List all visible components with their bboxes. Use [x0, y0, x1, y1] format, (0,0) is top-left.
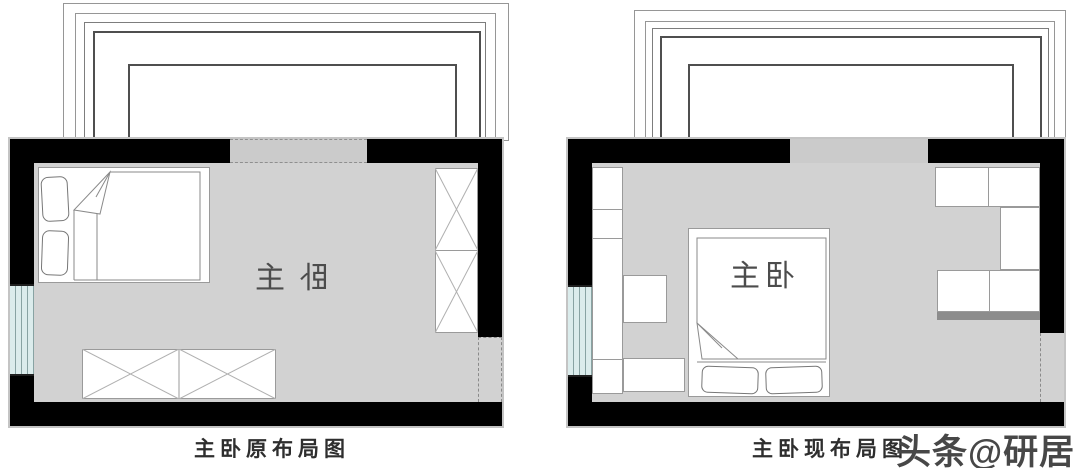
right-plan-window [568, 285, 592, 377]
cabinet-bottom [82, 349, 276, 399]
left-balcony-window-frame [128, 64, 457, 143]
wardrobe-left-strip [592, 167, 623, 394]
desk-edge-strip [937, 312, 1040, 320]
desk-bottom-right [937, 270, 1040, 312]
left-plan-caption: 主卧原布局图 [122, 433, 422, 463]
cabinet-bottom-left [623, 358, 685, 392]
cabinet-right-column [1000, 207, 1040, 270]
bed [38, 167, 210, 283]
left-plan-balcony-opening [230, 139, 367, 163]
left-plan-window [10, 284, 34, 376]
right-plan: 主卧 [568, 139, 1064, 426]
cabinet-top-right [935, 167, 1040, 207]
room-label-char-mirrored: 卧 [292, 253, 329, 297]
right-plan-door-opening [1040, 333, 1064, 402]
left-plan: 主卧 [10, 139, 502, 426]
stool [623, 275, 667, 323]
room-label-left: 主卧 [192, 253, 392, 297]
right-plan-balcony-opening [790, 139, 928, 163]
room-label-right: 主卧 [665, 251, 865, 295]
floorplan-canvas: 主卧 [0, 0, 1080, 468]
wardrobe-right [435, 168, 478, 333]
right-balcony-window-frame [688, 64, 1014, 143]
pillow [702, 366, 759, 394]
left-plan-door-opening [478, 337, 502, 402]
pillow [41, 176, 69, 221]
watermark: 头条@研居 [896, 424, 1075, 468]
pillow [41, 231, 69, 276]
pillow [766, 366, 823, 394]
room-label-char: 主 [255, 262, 292, 295]
